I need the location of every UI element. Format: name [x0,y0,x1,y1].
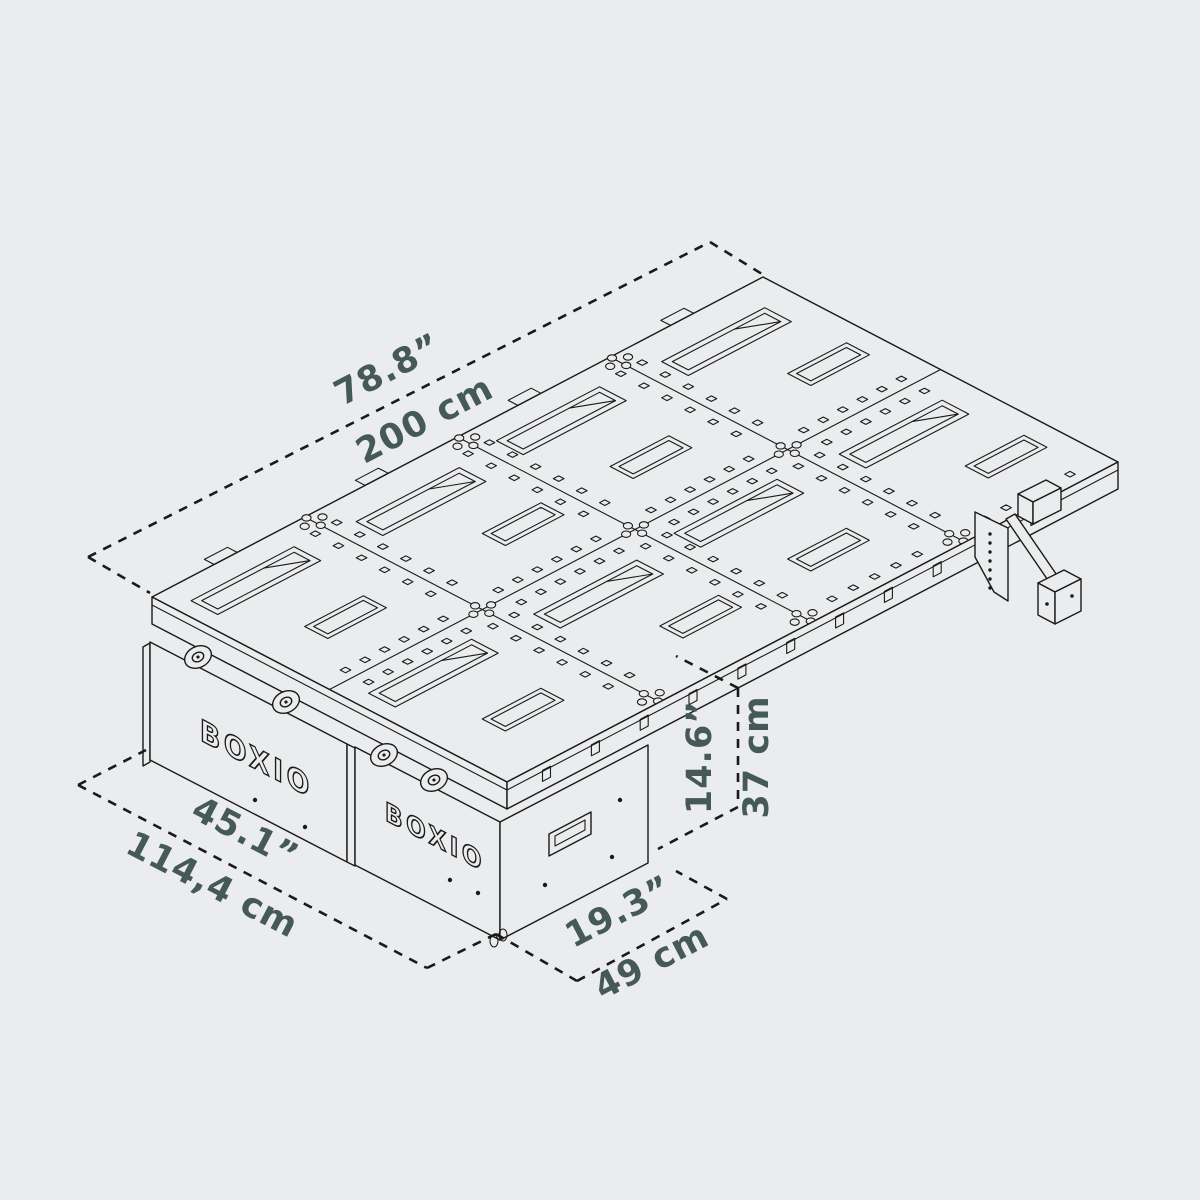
height-metric-label: 37 cm [737,695,777,818]
hinge-rosette-hole [637,699,646,705]
hinge-rosette-hole [623,354,632,360]
hinge-rosette-hole [453,443,462,449]
hinge-rosette-hole [469,442,478,448]
hinge-rosette-hole [623,523,632,529]
hinge-rosette-hole [471,434,480,440]
hinge-rosette-hole [487,602,496,608]
bracket-dot [988,577,991,580]
hinge-rosette-hole [774,451,783,457]
hinge-rosette-hole [622,362,631,368]
height-imperial-label: 14.6” [680,700,720,814]
hinge-rosette-hole [790,450,799,456]
hinge-rosette-hole [606,363,615,369]
bracket-dot [988,541,991,544]
hinge-rosette-hole [471,603,480,609]
hinge-rosette-hole [455,435,464,441]
bracket-dot [988,586,991,589]
hinge-rosette-hole [469,611,478,617]
hinge-rosette-hole [945,531,954,537]
hinge-rosette-hole [485,610,494,616]
hinge-rosette-hole [607,355,616,361]
hinge-rosette-hole [318,514,327,520]
hinge-rosette-hole [655,690,664,696]
box-divider-strip [347,744,355,866]
hinge-rosette-hole [302,515,311,521]
hinge-rosette-hole [300,523,309,529]
hinge-rosette-hole [961,530,970,536]
hinge-rosette-hole [808,610,817,616]
bracket-dot [988,559,991,562]
hinge-rosette-hole [622,531,631,537]
boxio-dimension-diagram: BOXIO BOXIO [0,0,1200,1200]
hinge-rosette-hole [639,522,648,528]
hinge-rosette-hole [316,522,325,528]
bracket-dot [988,568,991,571]
hinge-rosette-hole [792,442,801,448]
hinge-rosette-hole [943,539,952,545]
hinge-rosette-hole [790,619,799,625]
hinge-rosette-hole [776,443,785,449]
hinge-rosette-hole [792,611,801,617]
hinge-rosette-hole [638,530,647,536]
bracket-dot [988,532,991,535]
bracket-dot [988,550,991,553]
hinge-rosette-hole [639,691,648,697]
